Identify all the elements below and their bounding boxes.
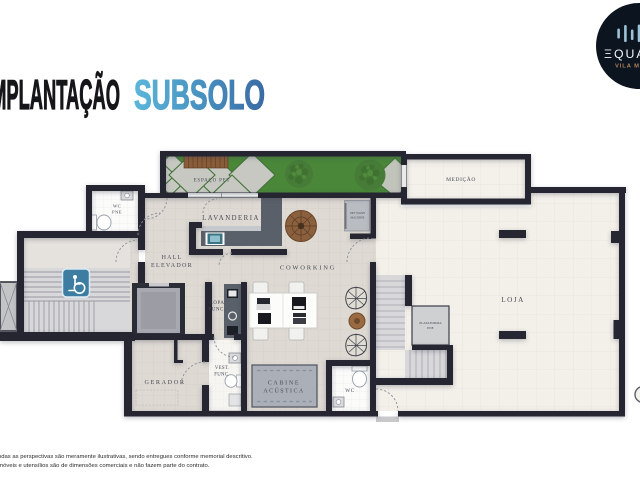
svg-text:MACHINE: MACHINE [351, 216, 365, 220]
svg-text:ELEVADOR: ELEVADOR [151, 263, 193, 269]
svg-text:PET WASH: PET WASH [350, 211, 365, 215]
svg-text:VILA MA: VILA MA [615, 64, 640, 70]
svg-text:WC: WC [345, 388, 355, 394]
svg-text:MEDIÇÃO: MEDIÇÃO [446, 175, 476, 183]
svg-text:FUNC.: FUNC. [208, 308, 225, 313]
svg-text:SUBSOLO: SUBSOLO [134, 71, 265, 118]
svg-text:LOJA: LOJA [501, 296, 525, 304]
svg-text:IMPLANTAÇÃO: IMPLANTAÇÃO [0, 71, 120, 118]
svg-text:PNE: PNE [112, 210, 122, 215]
svg-text:WC: WC [113, 204, 121, 209]
svg-text:LAVANDERIA: LAVANDERIA [202, 215, 260, 222]
svg-text:PLATAFORMA: PLATAFORMA [419, 321, 442, 325]
svg-text:VEST.: VEST. [215, 366, 229, 371]
svg-text:Todas as perspectivas são mera: Todas as perspectivas são meramente ilus… [0, 454, 253, 460]
svg-text:ESPAÇO PET: ESPAÇO PET [194, 179, 231, 184]
svg-text:HALL: HALL [162, 255, 183, 261]
svg-text:GERADOR: GERADOR [144, 379, 185, 386]
svg-text:Todos os móveis e utensílios s: Todos os móveis e utensílios são de dime… [0, 463, 210, 469]
svg-text:COPA: COPA [210, 301, 225, 306]
svg-text:COWORKING: COWORKING [280, 265, 336, 272]
svg-text:PNE: PNE [427, 326, 433, 330]
svg-text:FUNC.: FUNC. [214, 373, 230, 378]
svg-text:CABINE: CABINE [268, 381, 301, 387]
svg-text:ΞQUA: ΞQUA [604, 47, 640, 61]
svg-text:ACÚSTICA: ACÚSTICA [263, 387, 304, 395]
